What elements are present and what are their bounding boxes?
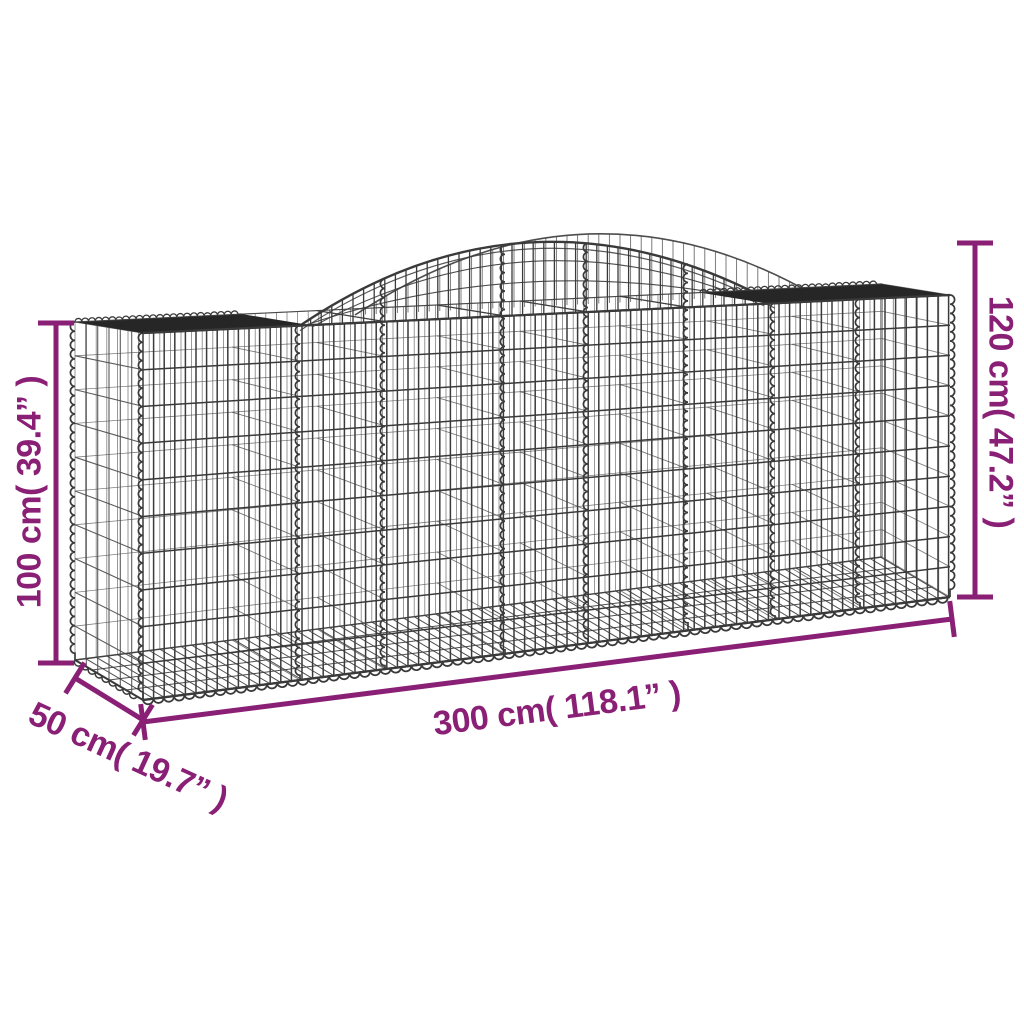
basket-arched-top-mesh (300, 234, 815, 331)
gabion-basket-drawing (0, 0, 1024, 1024)
dimension-diagram: 100 cm( 39.4” ) 120 cm( 47.2” ) 300 cm( … (0, 0, 1024, 1024)
dimension-label-side-height: 100 cm( 39.4” ) (11, 376, 50, 609)
dimension-label-total-height: 120 cm( 47.2” ) (981, 296, 1020, 529)
basket-front-wall-mesh (143, 295, 950, 700)
